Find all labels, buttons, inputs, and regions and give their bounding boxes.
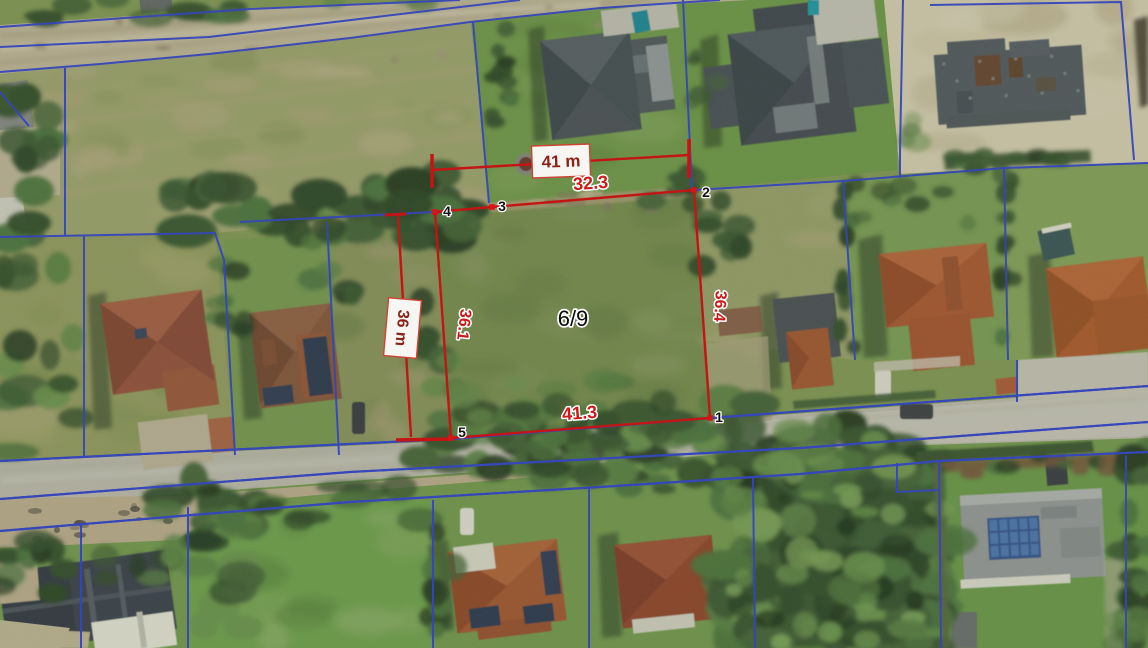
svg-text:41 m: 41 m — [541, 151, 580, 171]
svg-text:4: 4 — [443, 203, 451, 219]
svg-text:36 m: 36 m — [391, 309, 411, 347]
svg-text:41.3: 41.3 — [561, 402, 597, 424]
svg-text:3: 3 — [498, 198, 506, 214]
svg-text:2: 2 — [702, 184, 710, 200]
svg-text:36.4: 36.4 — [710, 290, 729, 322]
svg-text:5: 5 — [458, 424, 466, 440]
svg-text:32.3: 32.3 — [572, 172, 608, 194]
svg-text:6/9: 6/9 — [558, 306, 589, 331]
svg-text:1: 1 — [715, 409, 723, 425]
